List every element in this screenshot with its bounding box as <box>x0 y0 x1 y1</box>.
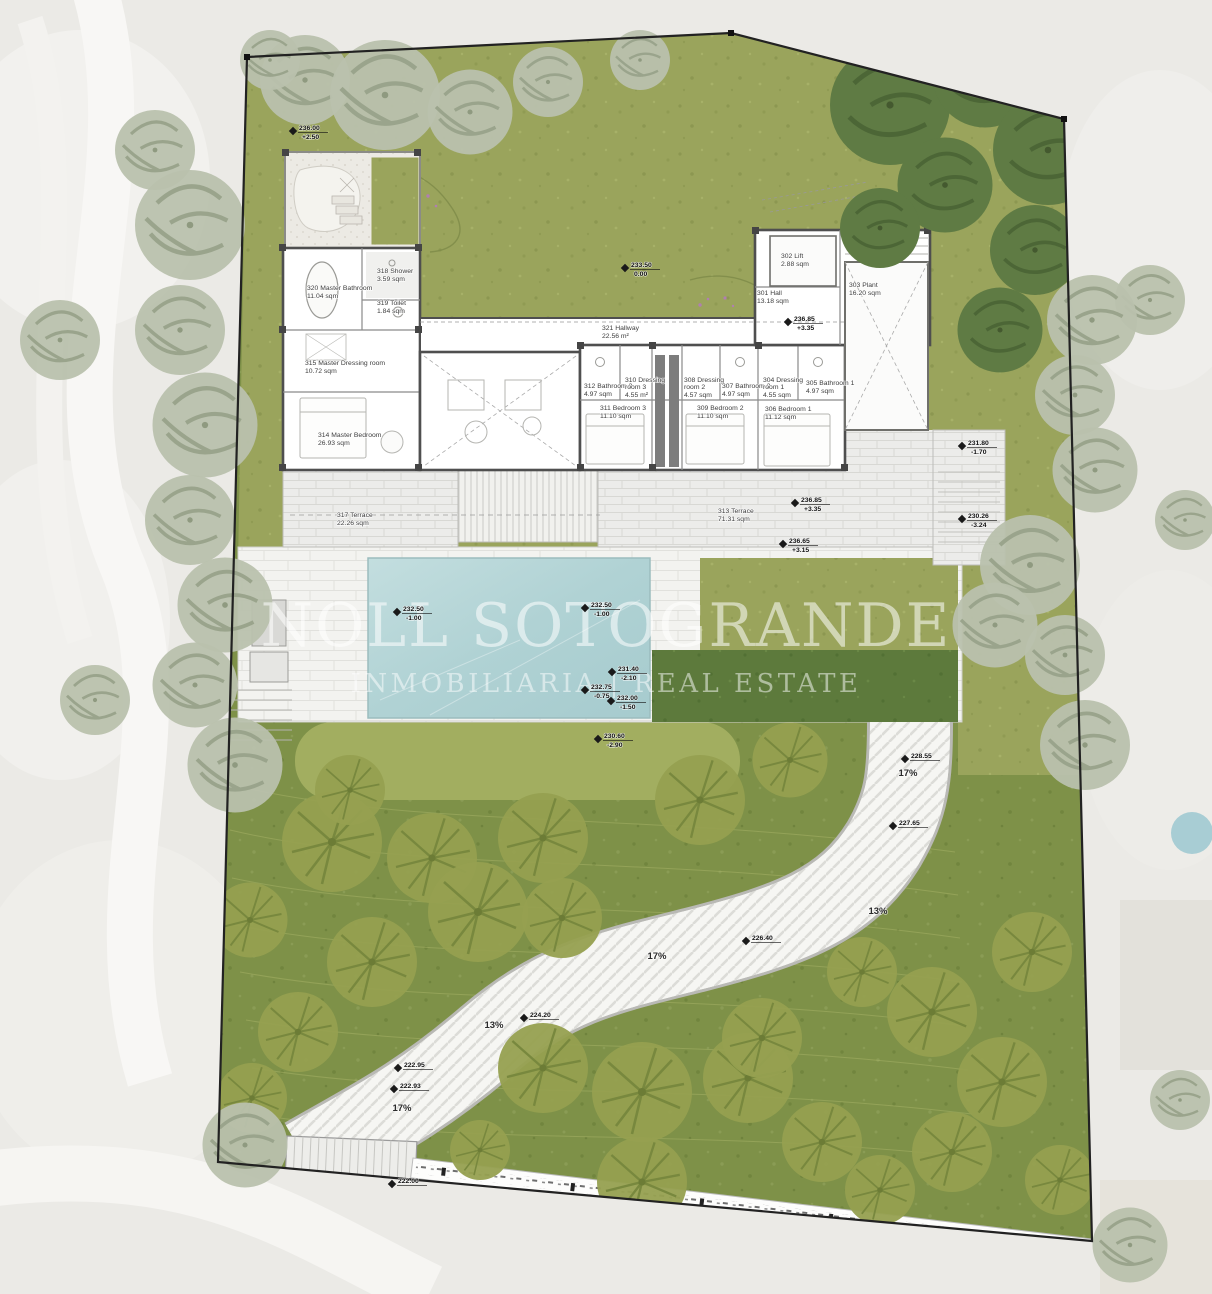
svg-text:11.12 sqm: 11.12 sqm <box>765 414 797 421</box>
slope-label: 17% <box>392 1103 412 1114</box>
site-plan: NOLL SOTOGRANDE INMOBILIARIA | REAL ESTA… <box>0 0 1212 1294</box>
svg-text:228.55: 228.55 <box>911 753 932 760</box>
svg-text:-1.70: -1.70 <box>971 449 987 456</box>
svg-text:231.40: 231.40 <box>618 666 639 673</box>
svg-text:315 Master Dressing room: 315 Master Dressing room <box>305 360 385 367</box>
svg-text:230.26: 230.26 <box>968 513 989 520</box>
svg-text:22.56 m²: 22.56 m² <box>602 333 630 340</box>
svg-text:4.55 m²: 4.55 m² <box>625 392 649 399</box>
svg-text:232.50: 232.50 <box>403 606 424 613</box>
neighbor-building <box>1120 900 1212 1070</box>
svg-text:224.20: 224.20 <box>530 1012 551 1019</box>
svg-text:233.50: 233.50 <box>631 262 652 269</box>
svg-text:222.95: 222.95 <box>404 1062 425 1069</box>
svg-text:222.93: 222.93 <box>400 1083 421 1090</box>
svg-text:22.26 sqm: 22.26 sqm <box>337 520 369 527</box>
svg-text:232.75: 232.75 <box>591 684 612 691</box>
svg-text:4.55 sqm: 4.55 sqm <box>763 392 791 399</box>
svg-text:302 Lift: 302 Lift <box>781 253 803 260</box>
svg-text:232.50: 232.50 <box>591 602 612 609</box>
svg-text:4.97 sqm: 4.97 sqm <box>722 391 750 398</box>
svg-text:+3.35: +3.35 <box>797 325 814 332</box>
svg-text:232.00: 232.00 <box>617 695 638 702</box>
svg-text:-0.75: -0.75 <box>594 693 610 700</box>
svg-text:11.10 sqm: 11.10 sqm <box>600 413 632 420</box>
svg-text:318 Shower: 318 Shower <box>377 268 414 275</box>
room-label-303: 303 Plant 16.20 sqm <box>849 282 881 297</box>
svg-text:16.20 sqm: 16.20 sqm <box>849 290 881 297</box>
svg-text:308 Dressing: 308 Dressing <box>684 377 724 384</box>
svg-text:236.85: 236.85 <box>801 497 822 504</box>
svg-text:314 Master Bedroom: 314 Master Bedroom <box>318 432 382 439</box>
room-label-319: 319 Toilet 1.84 sqm <box>377 300 406 315</box>
svg-text:1.84 sqm: 1.84 sqm <box>377 308 405 315</box>
svg-text:3.59 sqm: 3.59 sqm <box>377 276 405 283</box>
svg-text:305 Bathroom 1: 305 Bathroom 1 <box>806 380 855 387</box>
svg-text:-1.00: -1.00 <box>594 611 610 618</box>
svg-text:+3.15: +3.15 <box>792 547 809 554</box>
slope-label: 13% <box>868 906 888 917</box>
svg-text:13.18 sqm: 13.18 sqm <box>757 298 789 305</box>
svg-text:0.00: 0.00 <box>634 271 647 278</box>
svg-text:26.93 sqm: 26.93 sqm <box>318 440 350 447</box>
svg-text:11.04 sqm: 11.04 sqm <box>307 293 339 300</box>
svg-text:4.57 sqm: 4.57 sqm <box>684 392 712 399</box>
svg-text:236.65: 236.65 <box>789 538 810 545</box>
svg-text:11.10 sqm: 11.10 sqm <box>697 413 729 420</box>
svg-text:-1.50: -1.50 <box>620 704 636 711</box>
terrace-317 <box>283 470 458 547</box>
site-plan-drawing: NOLL SOTOGRANDE INMOBILIARIA | REAL ESTA… <box>0 0 1212 1294</box>
roof-terrace <box>285 152 420 248</box>
svg-text:319 Toilet: 319 Toilet <box>377 300 406 307</box>
svg-text:+3.35: +3.35 <box>804 506 821 513</box>
svg-text:-3.24: -3.24 <box>971 522 987 529</box>
svg-text:+2.50: +2.50 <box>302 134 319 141</box>
svg-text:226.40: 226.40 <box>752 935 773 942</box>
room-label-313: 313 Terrace 71.31 sqm <box>718 508 754 523</box>
neighbor-pool <box>1171 812 1212 854</box>
svg-text:231.80: 231.80 <box>968 440 989 447</box>
svg-text:-2.90: -2.90 <box>607 742 623 749</box>
terrace-313 <box>598 462 962 547</box>
svg-text:321 Hallway: 321 Hallway <box>602 325 640 332</box>
slope-label: 17% <box>898 768 918 779</box>
svg-text:309 Bedroom 2: 309 Bedroom 2 <box>697 405 744 412</box>
louvre-deck <box>458 470 598 542</box>
svg-text:room 2: room 2 <box>684 384 705 391</box>
svg-text:222.00: 222.00 <box>398 1178 419 1185</box>
svg-text:room 3: room 3 <box>625 384 646 391</box>
svg-text:-1.00: -1.00 <box>406 615 422 622</box>
svg-text:306 Bedroom 1: 306 Bedroom 1 <box>765 406 812 413</box>
svg-text:311 Bedroom 3: 311 Bedroom 3 <box>600 405 646 412</box>
svg-text:303 Plant: 303 Plant <box>849 282 878 289</box>
svg-text:227.65: 227.65 <box>899 820 920 827</box>
svg-text:236.00: 236.00 <box>299 125 320 132</box>
svg-text:301 Hall: 301 Hall <box>757 290 782 297</box>
svg-text:313 Terrace: 313 Terrace <box>718 508 754 515</box>
svg-text:236.85: 236.85 <box>794 316 815 323</box>
slope-label: 17% <box>647 951 667 962</box>
svg-text:320 Master Bathroom: 320 Master Bathroom <box>307 285 373 292</box>
svg-text:2.88 sqm: 2.88 sqm <box>781 261 809 268</box>
svg-text:10.72 sqm: 10.72 sqm <box>305 368 337 375</box>
svg-text:71.31 sqm: 71.31 sqm <box>718 516 750 523</box>
svg-text:310 Dressing: 310 Dressing <box>625 377 665 384</box>
svg-text:room 1: room 1 <box>763 384 784 391</box>
room-label-317: 317 Terrace 22.26 sqm <box>337 512 373 527</box>
svg-text:317 Terrace: 317 Terrace <box>337 512 373 519</box>
svg-text:230.60: 230.60 <box>604 733 625 740</box>
svg-text:-2.10: -2.10 <box>621 675 637 682</box>
svg-text:4.97 sqm: 4.97 sqm <box>584 391 612 398</box>
svg-text:304 Dressing: 304 Dressing <box>763 377 803 384</box>
slope-label: 13% <box>484 1020 504 1031</box>
svg-text:4.97 sqm: 4.97 sqm <box>806 388 834 395</box>
